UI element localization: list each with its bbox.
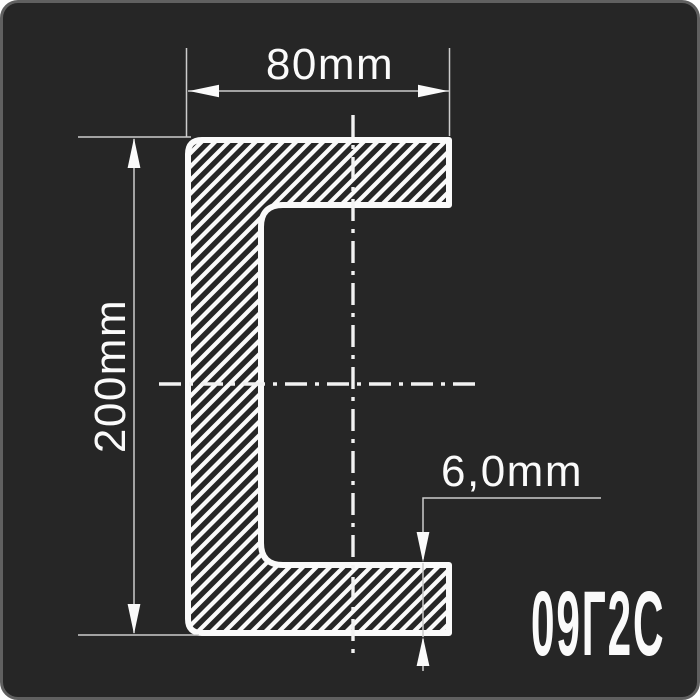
height-dim-label: 200mm [86, 299, 135, 453]
thickness-arrow-down [417, 532, 430, 562]
drawing-card: 80mm 200mm 6,0mm 09Г2С [0, 0, 700, 700]
height-arrow-top [128, 138, 141, 168]
channel-drawing: 80mm 200mm 6,0mm 09Г2С [3, 3, 700, 700]
thickness-leader-line [423, 498, 601, 559]
width-arrow-left [189, 85, 219, 97]
thickness-dim-label: 6,0mm [441, 447, 583, 496]
thickness-arrow-up [417, 637, 430, 666]
width-arrow-right [418, 85, 448, 97]
channel-profile [188, 140, 449, 633]
steel-grade-label: 09Г2С [531, 573, 665, 676]
width-dim-label: 80mm [266, 40, 394, 89]
height-arrow-bottom [128, 604, 141, 634]
